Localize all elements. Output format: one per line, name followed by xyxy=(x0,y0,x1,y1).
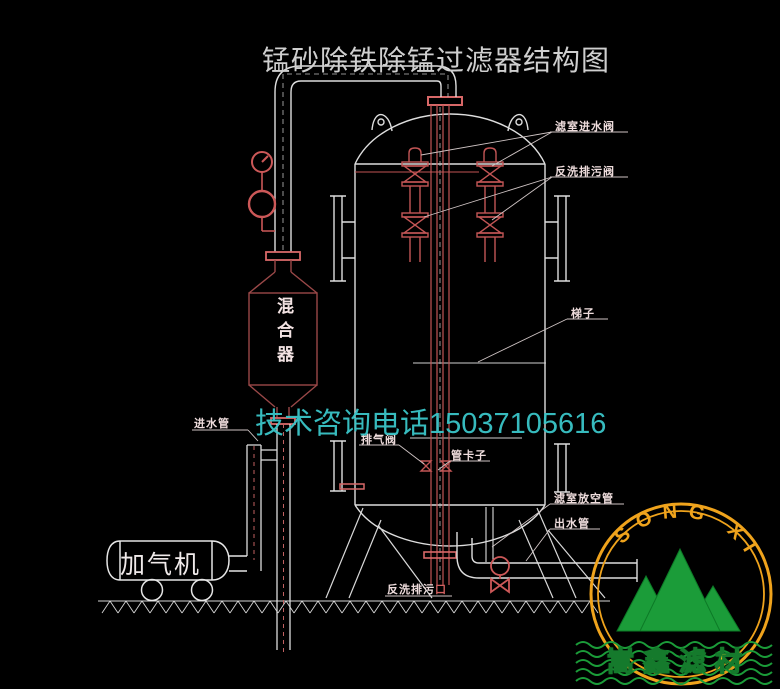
side-nozzle-lower-right xyxy=(554,444,570,492)
label-backwash-outlet-text: 反洗排污 xyxy=(387,584,435,596)
label-aerator: 加气机 xyxy=(120,545,201,581)
aerator-wheel-right xyxy=(192,580,213,601)
label-filter-inlet-valve: 滤室进水阀 xyxy=(555,118,615,134)
side-nozzle-lower-left xyxy=(330,441,364,491)
outlet-gate-valve xyxy=(491,557,509,592)
ground-hatching xyxy=(98,601,610,613)
label-pipe-clamp: 管卡子 xyxy=(451,447,487,463)
label-mixer: 混合器 xyxy=(271,297,296,369)
side-nozzle-upper-right xyxy=(545,196,570,281)
label-chamber-vent-pipe: 滤室放空管 xyxy=(554,490,614,506)
pressure-gauge xyxy=(249,152,275,231)
company-logo: SONG XIN xyxy=(0,0,772,684)
chamber-vent-pipe xyxy=(486,507,493,562)
backwash-valve-left xyxy=(402,213,428,262)
inlet-water-pipe xyxy=(277,424,290,656)
label-ladder: 梯子 xyxy=(571,305,595,321)
vessel-dished-bottom xyxy=(355,505,545,546)
label-backwash-outlet-suffix: 口 xyxy=(435,584,447,596)
logo-mountains-icon xyxy=(617,549,740,631)
label-backwash-drain-valve: 反洗排污阀 xyxy=(555,163,615,179)
backwash-valve-right xyxy=(477,213,503,262)
logo-arc-text: SONG XIN xyxy=(0,0,765,564)
contact-watermark: 技术咨询电话15037105616 xyxy=(255,400,606,442)
filter-inlet-valve-left xyxy=(402,148,428,213)
logo-company-name: 嵩鑫滤材 xyxy=(607,640,751,679)
filter-inlet-valve-right xyxy=(477,148,503,213)
top-inlet-flange xyxy=(428,97,462,105)
label-inlet-pipe: 进水管 xyxy=(194,415,230,431)
diagram-title: 锰砂除铁除锰过滤器结构图 xyxy=(262,39,610,79)
label-outlet-pipe: 出水管 xyxy=(554,515,590,531)
siphon-loop xyxy=(249,191,275,217)
side-nozzle-upper-left xyxy=(330,196,355,281)
internal-piping xyxy=(355,97,503,585)
aerator-wheel-left xyxy=(142,580,163,601)
mixer-to-vessel-pipe xyxy=(275,66,456,252)
air-pipe xyxy=(247,445,277,571)
filter-structure-diagram: SONG XIN 锰砂除铁除锰过滤器结构图 滤室进水阀 反洗排污阀 梯子 进水管… xyxy=(0,0,780,689)
label-backwash-drain-outlet: 反洗排污口 xyxy=(387,581,447,597)
